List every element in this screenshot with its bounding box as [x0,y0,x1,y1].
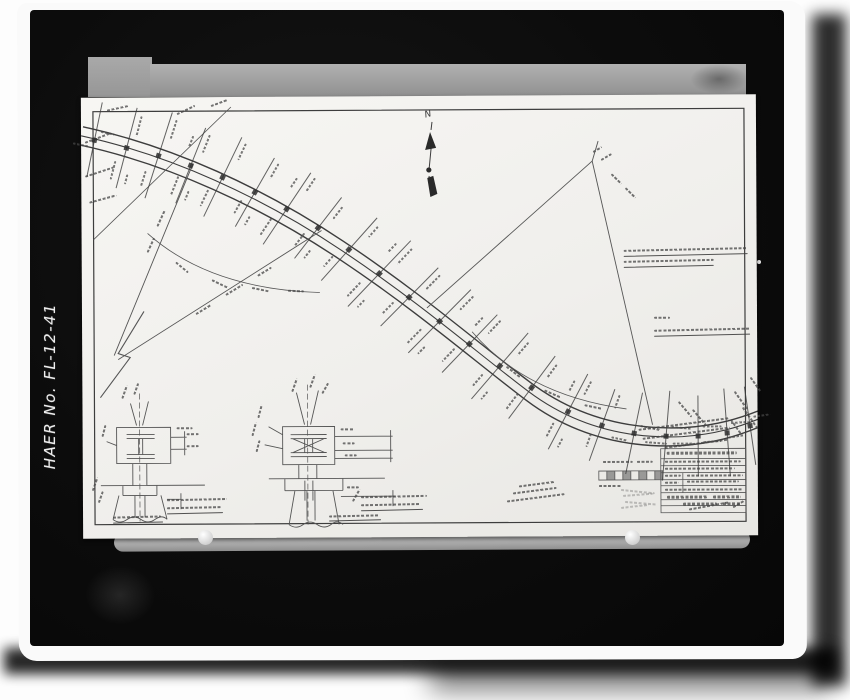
bent-label-scribble [184,190,190,200]
annotation-underline [167,512,223,514]
bent-station-tick [471,332,529,399]
bent-node [92,137,98,143]
bent-label-scribble [387,242,397,252]
bent-label-scribble [673,443,693,445]
annotation-underline [361,509,423,512]
bent-node [664,433,669,438]
bent-label-scribble [188,135,195,147]
bent-label-scribble [368,226,379,238]
bent-label-scribble [110,160,117,179]
handwritten-annotation [167,506,221,510]
bent-station-tick [723,388,731,476]
bent-label-scribble [703,440,721,444]
bent-station-tick [697,395,699,476]
handwritten-annotation [309,374,316,388]
bent-node [747,422,753,428]
bent-label-scribble [290,178,299,189]
bent-station-tick [548,373,589,449]
handwritten-annotation [665,475,681,477]
bent-label-scribble [557,438,564,448]
handwritten-annotation [343,442,355,444]
annotation-underline [654,334,750,337]
backing-board-smudge [690,64,748,94]
bent-station-tick [508,356,556,419]
handwritten-annotation [713,495,741,498]
handwritten-annotation [345,454,357,456]
handwritten-annotation [624,187,636,199]
handwritten-annotation [252,287,270,293]
handwritten-annotation [251,422,257,436]
handwritten-annotation [107,105,129,112]
handwritten-annotation [637,461,653,463]
bent-node [631,430,637,436]
bent-label-scribble [728,433,744,438]
handwritten-annotation [665,482,679,484]
bent-node [696,433,701,438]
handwritten-annotation [624,259,714,263]
handwritten-annotation [133,383,139,395]
handwritten-annotation [692,409,708,427]
bent-station-tick [348,240,412,307]
bent-node [188,162,194,168]
handwritten-annotation [121,385,128,399]
annotation-underline [624,265,714,268]
bent-label-scribble [645,441,667,445]
handwritten-annotation [176,105,195,116]
handwritten-annotation [506,366,522,379]
annotation-underline [329,519,381,521]
handwritten-annotation [654,328,750,333]
handwritten-annotation [507,493,565,503]
handwritten-annotations-layer [81,94,758,539]
handwritten-annotation [225,284,243,296]
handwritten-annotation [257,267,272,277]
handwritten-annotation [92,477,99,491]
bent-station-tick [589,389,616,461]
drawing-sheet: N [81,94,758,539]
handwritten-annotation [257,404,263,418]
handwritten-annotation [623,493,653,497]
bent-node [725,430,730,435]
bent-label-scribble [671,426,691,430]
handwritten-annotation [288,290,304,293]
handwritten-annotation [732,499,745,508]
handwritten-annotation [329,514,379,518]
handwritten-annotation [341,428,355,430]
bent-label-scribble [170,120,178,140]
handwritten-annotation [256,440,261,452]
bent-label-scribble [703,425,722,427]
handwritten-annotation [601,153,613,161]
bent-label-scribble [480,391,488,400]
handwritten-annotation [195,304,212,315]
handwritten-annotation [291,378,298,392]
handwritten-annotation [156,210,166,227]
handwritten-annotation [101,425,106,437]
handwritten-annotation [175,262,189,274]
bent-label-scribble [731,421,749,425]
bent-station-tick [175,127,206,203]
bent-label-scribble [583,380,592,394]
handwritten-annotation [211,279,228,289]
bent-label-scribble [124,174,129,184]
bent-label-scribble [357,299,366,308]
photo-shadow-corner [430,660,830,690]
bent-station-tick [408,289,472,353]
annotation-underline [113,521,163,523]
bent-node [124,144,130,150]
backing-board-left-tab [88,57,152,97]
bent-label-scribble [237,143,247,160]
bent-station-tick [442,314,498,373]
mat-smudge [85,565,155,625]
handwritten-annotation [89,194,117,204]
bent-label-scribble [303,249,311,258]
dust-speck [757,260,761,264]
annotation-underline [624,253,748,257]
bent-label-scribble [474,317,484,327]
bent-label-scribble [202,134,211,153]
handwritten-annotation [167,498,227,502]
handwritten-annotation [610,173,622,185]
bent-label-scribble [244,215,251,225]
support-peg-left [198,530,213,545]
bent-label-scribble [417,346,426,355]
handwritten-annotation [187,433,199,435]
handwritten-annotation [321,383,329,395]
bent-label-scribble [585,433,592,447]
handwritten-annotation [665,488,743,491]
handwritten-annotation [513,487,557,495]
handwritten-annotation [599,485,621,488]
handwritten-annotation [621,504,649,509]
bent-label-scribble [135,116,143,137]
support-peg-right [625,530,640,545]
handwritten-annotation [687,474,743,477]
handwritten-annotation [678,401,693,418]
photo-shadow-right [812,14,846,686]
handwritten-annotation [210,99,228,107]
bent-node [565,408,572,415]
handwritten-annotation [654,317,670,319]
haer-archive-label: HAER No. FL-12-41 [41,286,63,486]
handwritten-annotation [187,445,199,447]
bent-station-tick [380,267,439,326]
bent-label-scribble [140,171,147,187]
handwritten-annotation [544,389,561,398]
handwritten-annotation [687,480,739,483]
archival-photo-page: HAER No. FL-12-41 [0,0,850,700]
handwritten-annotation [361,503,421,507]
handwritten-annotation [593,146,603,153]
handwritten-annotation [98,491,104,503]
backing-board [150,64,746,97]
handwritten-annotation [347,486,359,488]
handwritten-annotation [584,404,602,410]
bent-label-scribble [611,435,628,441]
bent-node [156,152,162,158]
handwritten-annotation [147,238,156,254]
bent-label-scribble [233,199,243,213]
handwritten-annotation [624,247,748,252]
bent-label-scribble [568,380,576,392]
bent-station-tick [145,112,174,198]
handwritten-annotation [361,495,427,499]
handwritten-annotation [665,467,735,470]
bent-label-scribble [614,395,621,409]
bent-station-tick [321,218,378,282]
handwritten-annotation [177,427,193,429]
handwritten-annotation [667,451,737,454]
bent-station-tick [294,197,342,259]
bent-station-tick [116,107,138,188]
handwritten-annotation [667,495,707,498]
bent-station-tick [235,157,275,226]
handwritten-annotation [352,489,361,502]
handwritten-annotation [113,516,161,519]
